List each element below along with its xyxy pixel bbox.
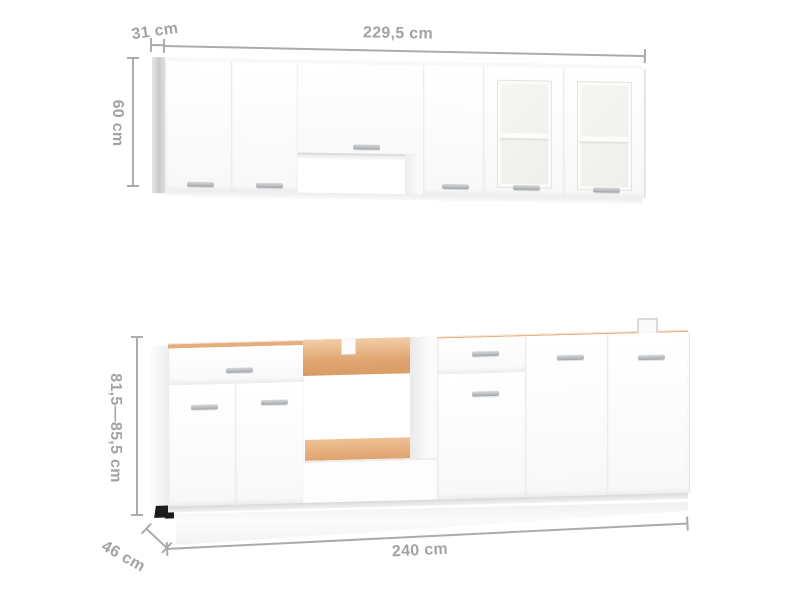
base-cabinet-run (150, 330, 688, 524)
cabinet-handle (442, 184, 469, 189)
cabinet-handle (187, 182, 214, 187)
oven-cavity-bracket (341, 339, 356, 355)
dimension-line-base-height (136, 336, 138, 516)
dimension-line-upper-width (163, 45, 646, 57)
wall-cabinet-left-side-panel (152, 57, 165, 193)
glass-shelf-2 (579, 136, 628, 142)
wall-cabinet-run (152, 57, 645, 205)
oven-cavity-top-panel (303, 337, 410, 376)
wall-door-3 (423, 65, 484, 195)
cabinet-handle (353, 144, 380, 149)
wall-door-2 (231, 62, 298, 192)
oven-under-panel (303, 457, 437, 506)
dimension-label-upper-height: 60 cm (108, 97, 126, 149)
dimension-label-upper-width: 229,5 cm (358, 24, 438, 44)
dimension-label-base-height: 81,5—85,5 cm (106, 372, 124, 484)
glass-shelf-1 (499, 133, 548, 139)
dimension-line-base-depth (146, 528, 169, 549)
cabinet-handle (513, 185, 540, 190)
cabinet-handle (191, 404, 218, 410)
base-left-side-panel (150, 346, 169, 507)
hood-bridge-cabinet (297, 63, 424, 156)
base-door-1 (168, 384, 236, 507)
dimension-label-base-depth: 46 cm (94, 536, 152, 579)
product-dimension-image: 31 cm 229,5 cm 60 cm 81,5—85,5 cm 46 cm … (0, 0, 800, 600)
wall-door-1 (165, 61, 232, 191)
dimension-label-upper-depth: 31 cm (127, 19, 183, 44)
cabinet-handle (261, 399, 288, 405)
dimension-line-upper-height (132, 57, 134, 187)
cabinet-handle (472, 351, 499, 357)
hood-notch-shadow (297, 154, 405, 161)
cabinet-handle (226, 367, 253, 373)
cabinet-handle (472, 391, 499, 397)
base-drawer-1 (168, 345, 304, 386)
oven-cavity-bottom-panel (305, 437, 410, 461)
worktop-fixing-bracket (637, 318, 658, 334)
oven-cavity-side-panel (410, 336, 437, 458)
cabinet-handle (638, 355, 665, 361)
cabinet-handle (593, 187, 620, 192)
hood-notch-side-panel (405, 154, 423, 194)
cabinet-handle (557, 355, 584, 361)
cabinet-handle (256, 183, 283, 188)
dimension-label-base-width: 240 cm (387, 540, 454, 561)
